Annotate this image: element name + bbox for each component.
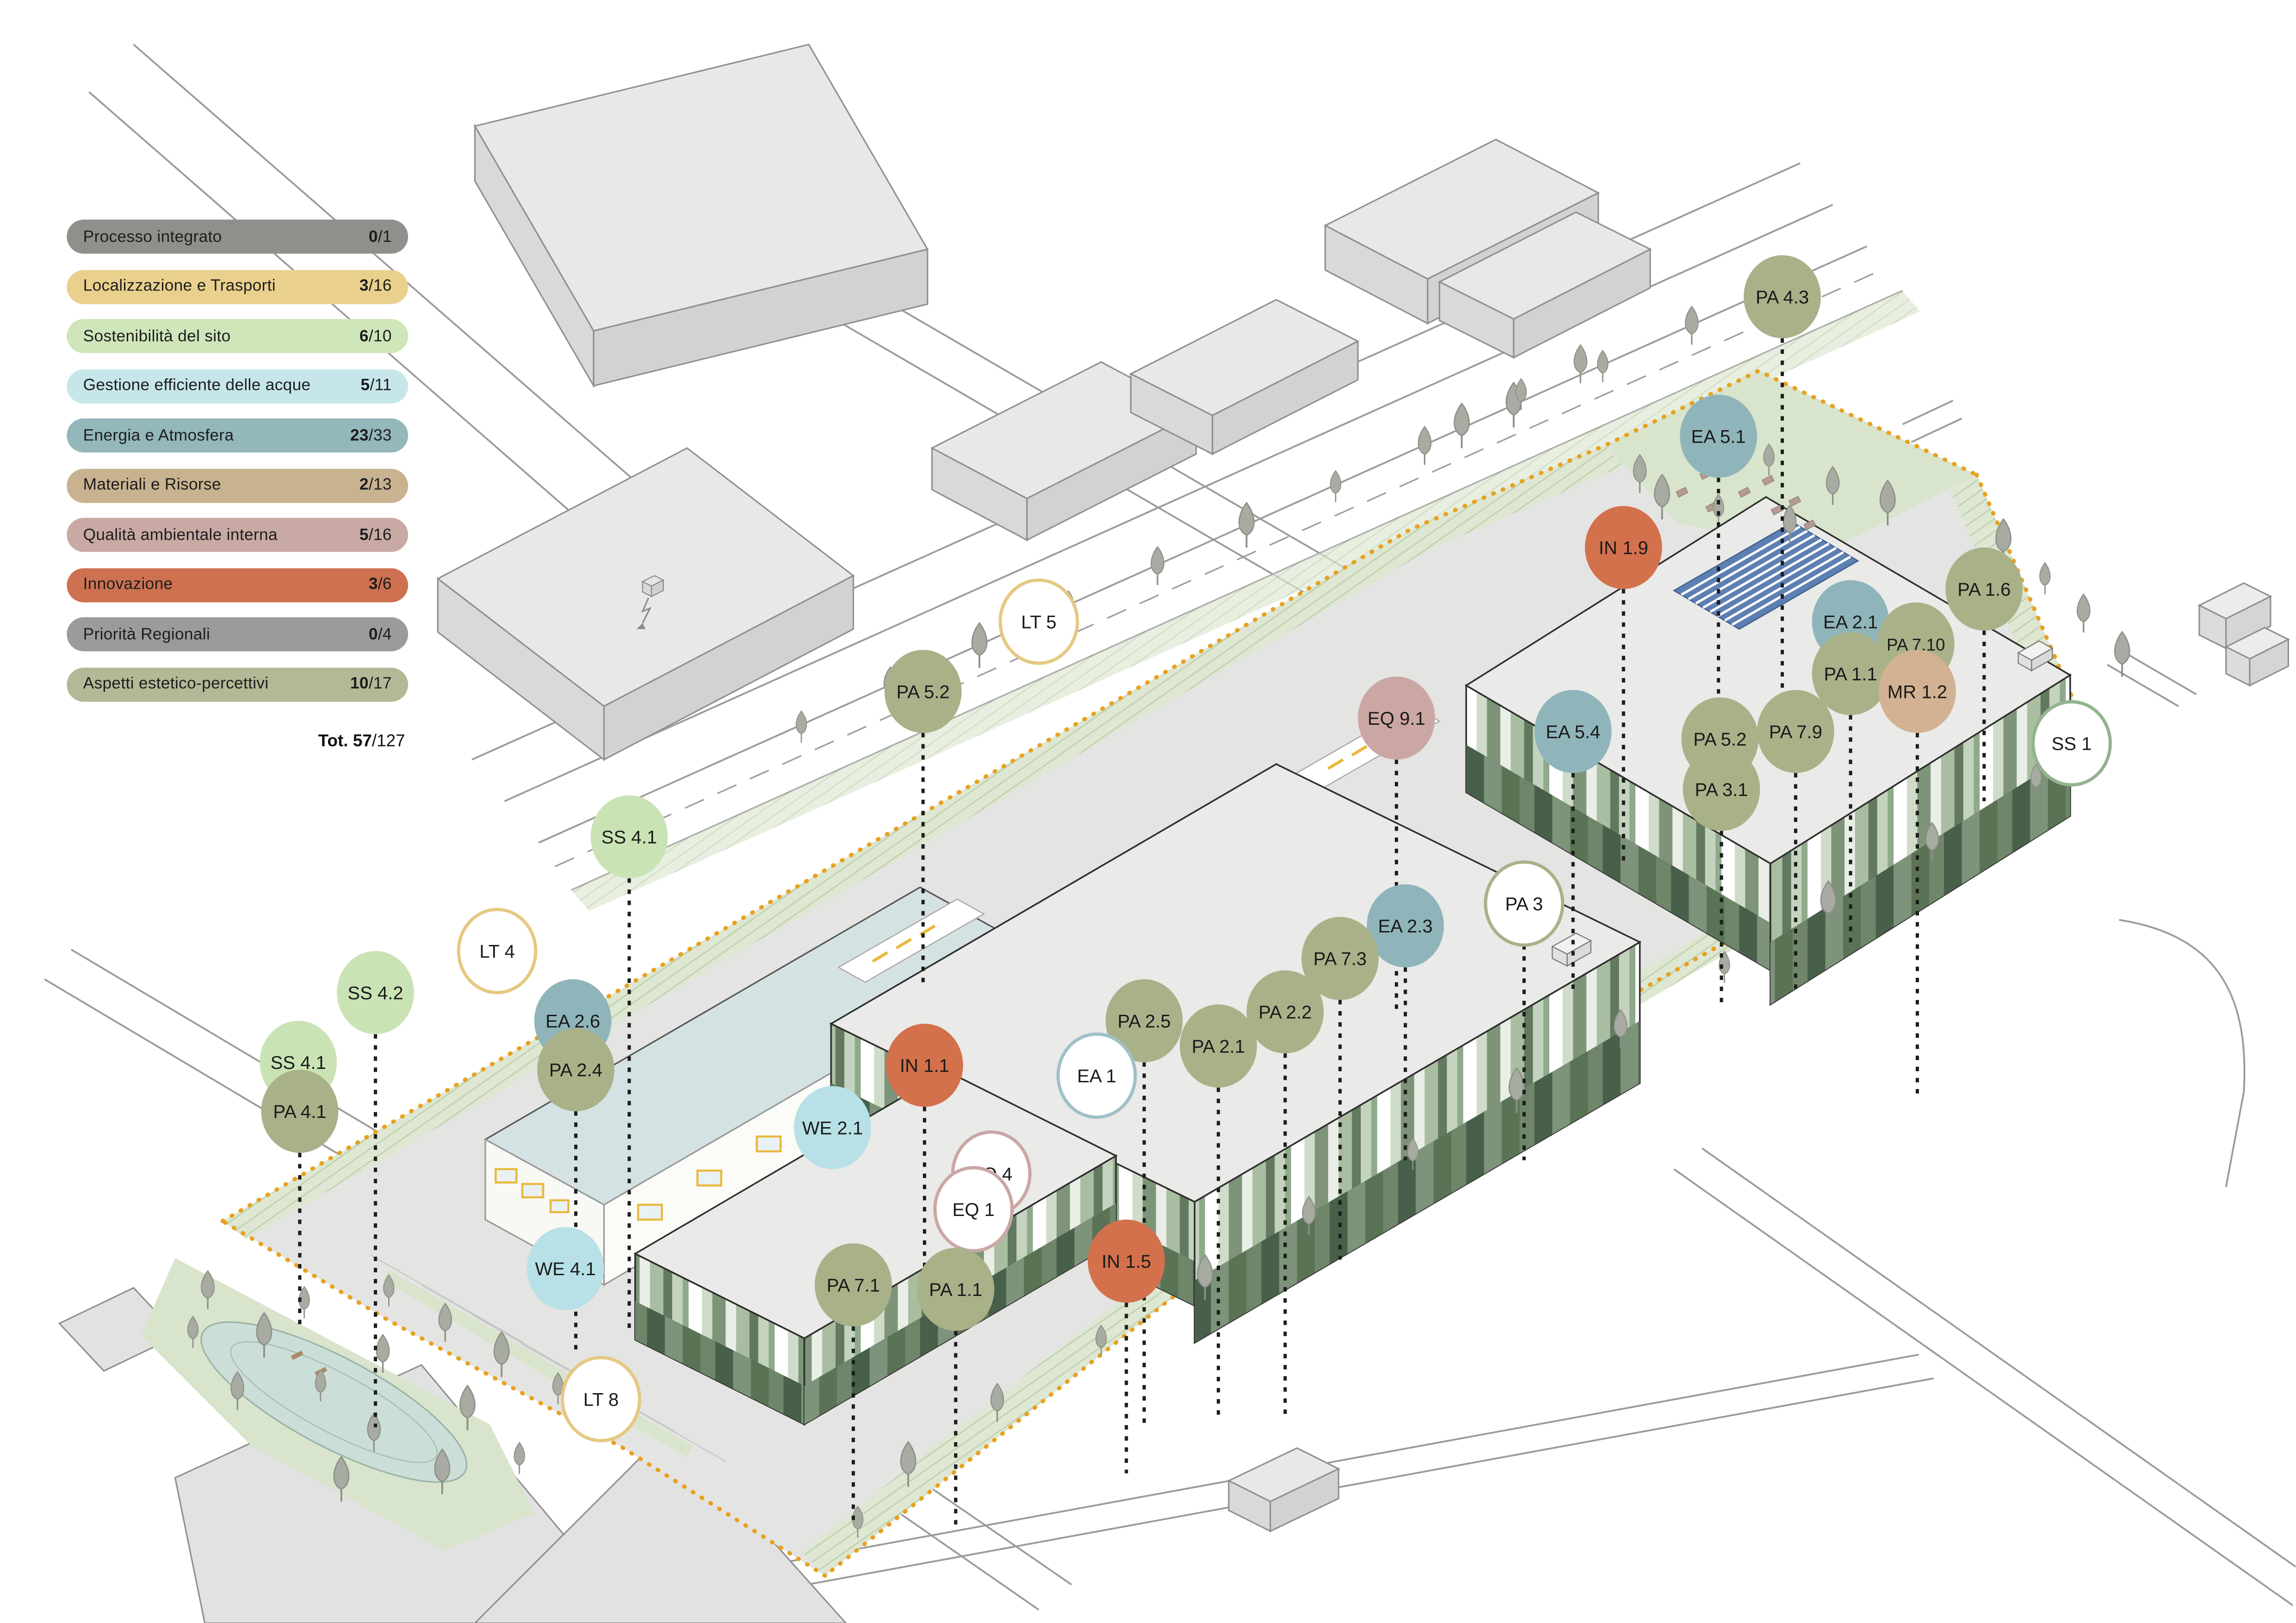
credit-marker-ea-5-4: EA 5.4 (1535, 690, 1612, 773)
tree-icon (1239, 503, 1254, 548)
credit-marker-label: IN 1.9 (1599, 538, 1648, 558)
credit-marker-label: LT 5 (1021, 612, 1057, 633)
tree-icon (1685, 307, 1698, 345)
legend-item: Qualità ambientale interna5/16 (67, 518, 408, 552)
legend-item-label: Aspetti estetico-percettivi (83, 675, 269, 693)
tree-icon (1418, 426, 1431, 465)
legend-item-score: 23/33 (350, 426, 392, 444)
legend-total-score: 57 (353, 733, 372, 751)
tree-icon (299, 1287, 309, 1318)
credit-marker-label: LT 4 (479, 942, 515, 962)
legend-item-score: 5/16 (359, 526, 392, 543)
legend-item-label: Energia e Atmosfera (83, 426, 234, 444)
credit-marker-label: PA 7.1 (827, 1275, 880, 1296)
site-certification-diagram: PA 4.3EA 5.1IN 1.9PA 1.6EA 2.1PA 7.10PA … (0, 0, 2296, 1623)
credit-marker-label: PA 2.4 (549, 1060, 602, 1080)
legend-item: Processo integrato0/1 (67, 220, 408, 254)
legend-item-label: Processo integrato (83, 228, 222, 245)
credit-marker-lt-4: LT 4 (458, 909, 536, 993)
legend-item: Sostenibilità del sito6/10 (67, 319, 408, 353)
credit-marker-pa-4-1: PA 4.1 (261, 1070, 339, 1153)
credit-marker-pa-2-4: PA 2.4 (537, 1028, 614, 1111)
credit-marker-ss-4-2: SS 4.2 (337, 951, 414, 1034)
legend-total-label: Tot. (318, 733, 348, 751)
legend-total: Tot. 57/127 (67, 733, 408, 751)
credit-marker-label: LT 8 (583, 1389, 619, 1410)
tree-icon (972, 623, 987, 668)
legend-item-label: Localizzazione e Trasporti (83, 278, 276, 295)
credit-marker-pa-1-1: PA 1.1 (917, 1248, 994, 1331)
legend-item: Energia e Atmosfera23/33 (67, 419, 408, 453)
context-house (1229, 1448, 1338, 1531)
credit-marker-pa-3: PA 3 (1485, 862, 1563, 945)
credit-marker-label: PA 1.1 (1824, 664, 1877, 685)
legend-item-label: Qualità ambientale interna (83, 526, 278, 543)
credit-marker-label: PA 7.9 (1769, 722, 1822, 742)
legend-item-label: Sostenibilità del sito (83, 327, 231, 345)
credit-marker-ea-5-1: EA 5.1 (1680, 395, 1757, 478)
credit-marker-label: EA 1 (1077, 1066, 1116, 1086)
credit-marker-label: MR 1.2 (1888, 682, 1947, 702)
credit-marker-mr-1-2: MR 1.2 (1879, 650, 1956, 733)
tree-icon (1454, 403, 1469, 448)
credit-marker-label: IN 1.5 (1102, 1252, 1151, 1272)
credit-marker-pa-1-6: PA 1.6 (1945, 548, 2023, 631)
legend-item-label: Innovazione (83, 576, 173, 593)
legend-item-score: 10/17 (350, 675, 392, 693)
credit-marker-we-4-1: WE 4.1 (527, 1227, 604, 1310)
credit-marker-label: IN 1.1 (900, 1056, 949, 1076)
legend-item-score: 5/11 (360, 377, 391, 395)
credit-marker-eq-9-1: EQ 9.1 (1358, 677, 1435, 760)
credit-marker-label: PA 5.2 (897, 682, 950, 702)
credit-marker-ss-4-1: SS 4.1 (591, 795, 668, 878)
legend-item-score: 3/16 (359, 278, 392, 295)
context-small-boxes (2199, 583, 2288, 685)
credit-marker-label: SS 4.2 (347, 983, 403, 1003)
legend-item-score: 6/10 (359, 327, 392, 345)
legend: Processo integrato0/1Localizzazione e Tr… (67, 220, 408, 751)
credit-marker-pa-7-1: PA 7.1 (815, 1243, 892, 1327)
legend-item-label: Gestione efficiente delle acque (83, 377, 311, 395)
credit-marker-label: SS 1 (2052, 734, 2092, 754)
credit-marker-we-2-1: WE 2.1 (794, 1086, 871, 1169)
legend-item-score: 3/6 (369, 576, 392, 593)
tree-icon (796, 711, 807, 742)
credit-marker-label: PA 2.2 (1258, 1002, 1312, 1023)
legend-item-score: 0/4 (369, 625, 392, 643)
tree-icon (1151, 547, 1163, 585)
credit-marker-label: PA 7.3 (1313, 949, 1367, 969)
credit-marker-label: PA 4.3 (1756, 287, 1809, 308)
credit-marker-label: PA 1.1 (929, 1280, 982, 1300)
legend-item-label: Priorità Regionali (83, 625, 210, 643)
credit-marker-label: PA 3 (1505, 894, 1543, 914)
credit-marker-pa-5-2: PA 5.2 (885, 650, 962, 733)
credit-marker-label: WE 4.1 (535, 1259, 595, 1279)
tree-icon (2040, 563, 2050, 594)
legend-item-label: Materiali e Risorse (83, 476, 221, 494)
legend-item: Materiali e Risorse2/13 (67, 468, 408, 502)
credit-marker-label: PA 2.1 (1192, 1037, 1245, 1057)
credit-marker-label: WE 2.1 (802, 1118, 863, 1138)
legend-item-score: 2/13 (359, 476, 392, 494)
credit-marker-label: EQ 9.1 (1368, 709, 1425, 729)
credit-marker-label: EA 2.3 (1378, 916, 1433, 937)
credit-marker-ea-1: EA 1 (1058, 1034, 1135, 1117)
legend-item: Aspetti estetico-percettivi10/17 (67, 667, 408, 701)
legend-item: Gestione efficiente delle acque5/11 (67, 369, 408, 403)
credit-marker-label: EA 5.1 (1691, 427, 1746, 447)
credit-marker-pa-4-3: PA 4.3 (1744, 255, 1821, 339)
legend-item: Localizzazione e Trasporti3/16 (67, 269, 408, 303)
credit-marker-eq-1: EQ 1 (935, 1168, 1012, 1251)
tree-icon (2077, 594, 2090, 633)
tree-icon (1597, 351, 1608, 382)
credit-marker-ss-1: SS 1 (2033, 702, 2110, 785)
credit-marker-lt-8: LT 8 (563, 1358, 640, 1441)
credit-marker-in-1-5: IN 1.5 (1088, 1220, 1165, 1303)
tree-icon (1331, 471, 1341, 502)
credit-marker-label: PA 3.1 (1695, 780, 1748, 800)
credit-marker-label: PA 5.2 (1693, 729, 1746, 750)
credit-marker-in-1-9: IN 1.9 (1585, 506, 1662, 589)
credit-marker-in-1-1: IN 1.1 (886, 1024, 963, 1107)
credit-marker-pa-2-1: PA 2.1 (1180, 1005, 1257, 1088)
credit-marker-pa-2-2: PA 2.2 (1247, 970, 1324, 1054)
credit-marker-pa-1-1: PA 1.1 (1812, 632, 1889, 716)
credit-marker-label: SS 4.1 (601, 827, 657, 848)
legend-total-max: /127 (372, 733, 405, 751)
legend-item-score: 0/1 (369, 228, 392, 245)
credit-marker-label: PA 1.6 (1957, 580, 2011, 600)
credit-marker-label: EQ 1 (953, 1200, 995, 1220)
legend-item: Innovazione3/6 (67, 568, 408, 602)
credit-marker-label: EA 2.1 (1823, 612, 1878, 633)
credit-marker-label: PA 2.5 (1118, 1011, 1171, 1031)
tree-icon (514, 1443, 525, 1474)
credit-marker-label: EA 5.4 (1546, 722, 1600, 742)
credit-marker-lt-5: LT 5 (1000, 580, 1077, 663)
legend-item: Priorità Regionali0/4 (67, 617, 408, 651)
credit-marker-pa-7-9: PA 7.9 (1757, 690, 1834, 773)
credit-marker-pa-3-1: PA 3.1 (1683, 748, 1760, 831)
credit-marker-label: PA 4.1 (273, 1102, 326, 1122)
